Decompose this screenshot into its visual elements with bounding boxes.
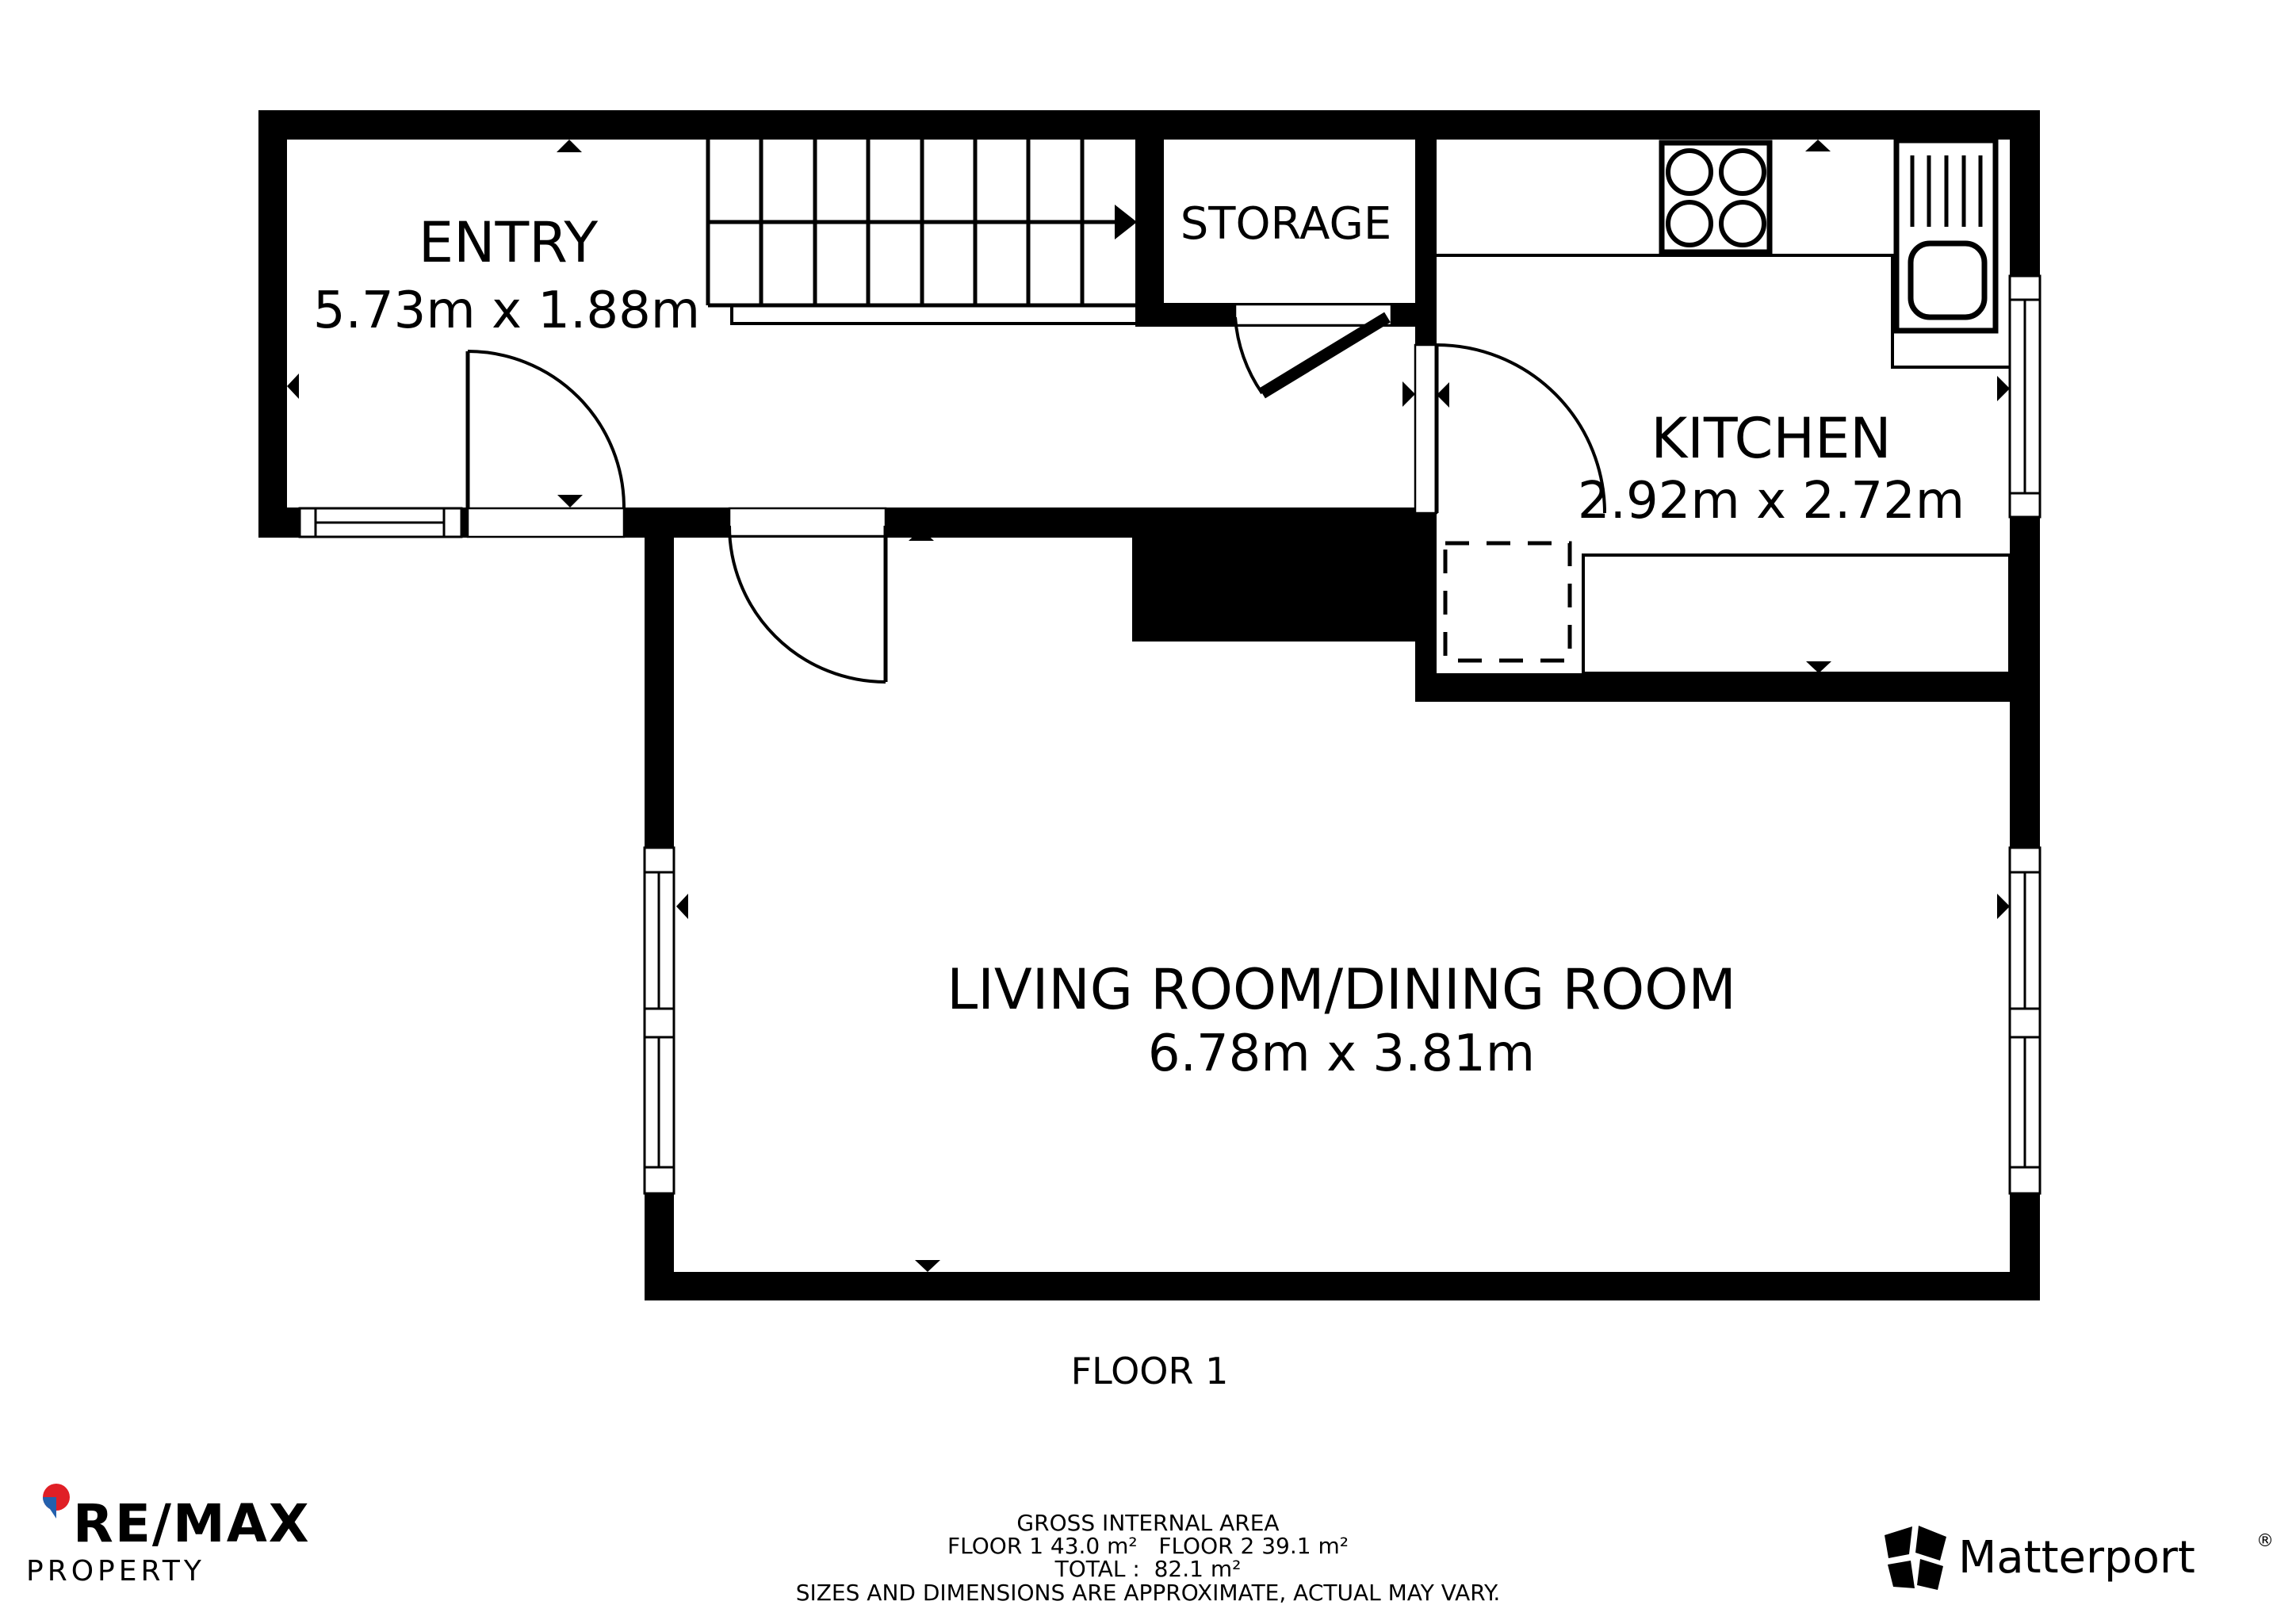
living-right-sill-mid [2010, 1009, 2040, 1037]
storage-door-arc [1235, 317, 1262, 393]
arrow-living-left-icon [676, 894, 688, 919]
floorplan-canvas: ENTRY 5.73m x 1.88m STORAGE KITCHEN 2.92… [0, 0, 2296, 1624]
wall-stairs-storage-divider [1135, 140, 1164, 327]
arrow-entry-left-icon [287, 373, 299, 399]
living-right-sill-bottom [2010, 1167, 2040, 1193]
remax-balloon-icon [43, 1484, 70, 1519]
kitchen-lower-counter [1583, 555, 2010, 673]
kitchen-room-label: KITCHEN [1651, 406, 1891, 471]
stairs-landing [732, 305, 1135, 324]
living-right-sill-top [2010, 848, 2040, 872]
living-room-label: LIVING ROOM/DINING ROOM [947, 957, 1735, 1022]
footer-area-summary: GROSS INTERNAL AREA FLOOR 1 43.0 m² FLOO… [796, 1510, 1501, 1606]
disclaimer-line: SIZES AND DIMENSIONS ARE APPROXIMATE, AC… [796, 1580, 1501, 1606]
appliance-dashed-icon [1445, 543, 1570, 661]
living-left-sill-top [645, 848, 674, 872]
kitchen-window-sill-bottom [2010, 493, 2040, 517]
kitchen-room-dims: 2.92m x 2.72m [1578, 472, 1965, 530]
living-door-opening [729, 508, 886, 536]
entry-window-sill-right [444, 508, 461, 537]
entry-window-sill-left [300, 508, 316, 537]
remax-property-label: PROPERTY [26, 1555, 205, 1588]
living-left-sill-bottom [645, 1167, 674, 1193]
storage-door-leaf [1262, 317, 1387, 393]
entry-door-arc [468, 351, 624, 507]
arrow-entry-bottom-icon [557, 495, 583, 507]
arrow-entry-top-icon [557, 140, 582, 152]
matterport-icon [1885, 1526, 1946, 1590]
storage-room-label: STORAGE [1181, 198, 1392, 250]
living-door-arc [729, 526, 886, 682]
wall-core-block [1132, 507, 1437, 642]
entry-room-dims: 5.73m x 1.88m [313, 282, 700, 340]
total-area-line: TOTAL : 82.1 m² [1054, 1556, 1242, 1582]
entry-room-label: ENTRY [419, 210, 599, 275]
floorplan-page: ENTRY 5.73m x 1.88m STORAGE KITCHEN 2.92… [0, 0, 2296, 1624]
stairs [708, 140, 1137, 324]
entry-door-opening [468, 508, 624, 537]
matterport-wordmark: Matterport [1958, 1532, 2195, 1584]
wall-kitchen-bottom [1415, 673, 2040, 702]
arrow-living-bottom-icon [915, 1260, 940, 1272]
stairs-direction-arrow [1115, 205, 1137, 239]
kitchen-window-sill-top [2010, 276, 2040, 300]
kitchen-door-opening [1415, 345, 1437, 513]
matterport-registered-mark: ® [2256, 1531, 2274, 1551]
wall-top [258, 110, 2040, 140]
living-room-dims: 6.78m x 3.81m [1148, 1025, 1535, 1083]
arrow-living-right-icon [1997, 894, 2010, 919]
stove-icon [1662, 143, 1770, 252]
remax-logo: RE/MAX PROPERTY [26, 1484, 311, 1588]
arrow-hall-right-icon [1402, 381, 1415, 407]
remax-wordmark: RE/MAX [73, 1493, 311, 1554]
living-left-sill-mid [645, 1009, 674, 1037]
storage-door-opening [1235, 304, 1391, 325]
arrow-kitchen-right-icon [1997, 376, 2010, 401]
room-labels: ENTRY 5.73m x 1.88m STORAGE KITCHEN 2.92… [313, 198, 1965, 1392]
wall-living-bottom [645, 1272, 2040, 1300]
floor-label: FLOOR 1 [1071, 1350, 1229, 1392]
arrow-kitchen-top-icon [1805, 140, 1831, 151]
matterport-logo: Matterport ® [1885, 1526, 2274, 1590]
wall-entry-left [258, 110, 287, 538]
